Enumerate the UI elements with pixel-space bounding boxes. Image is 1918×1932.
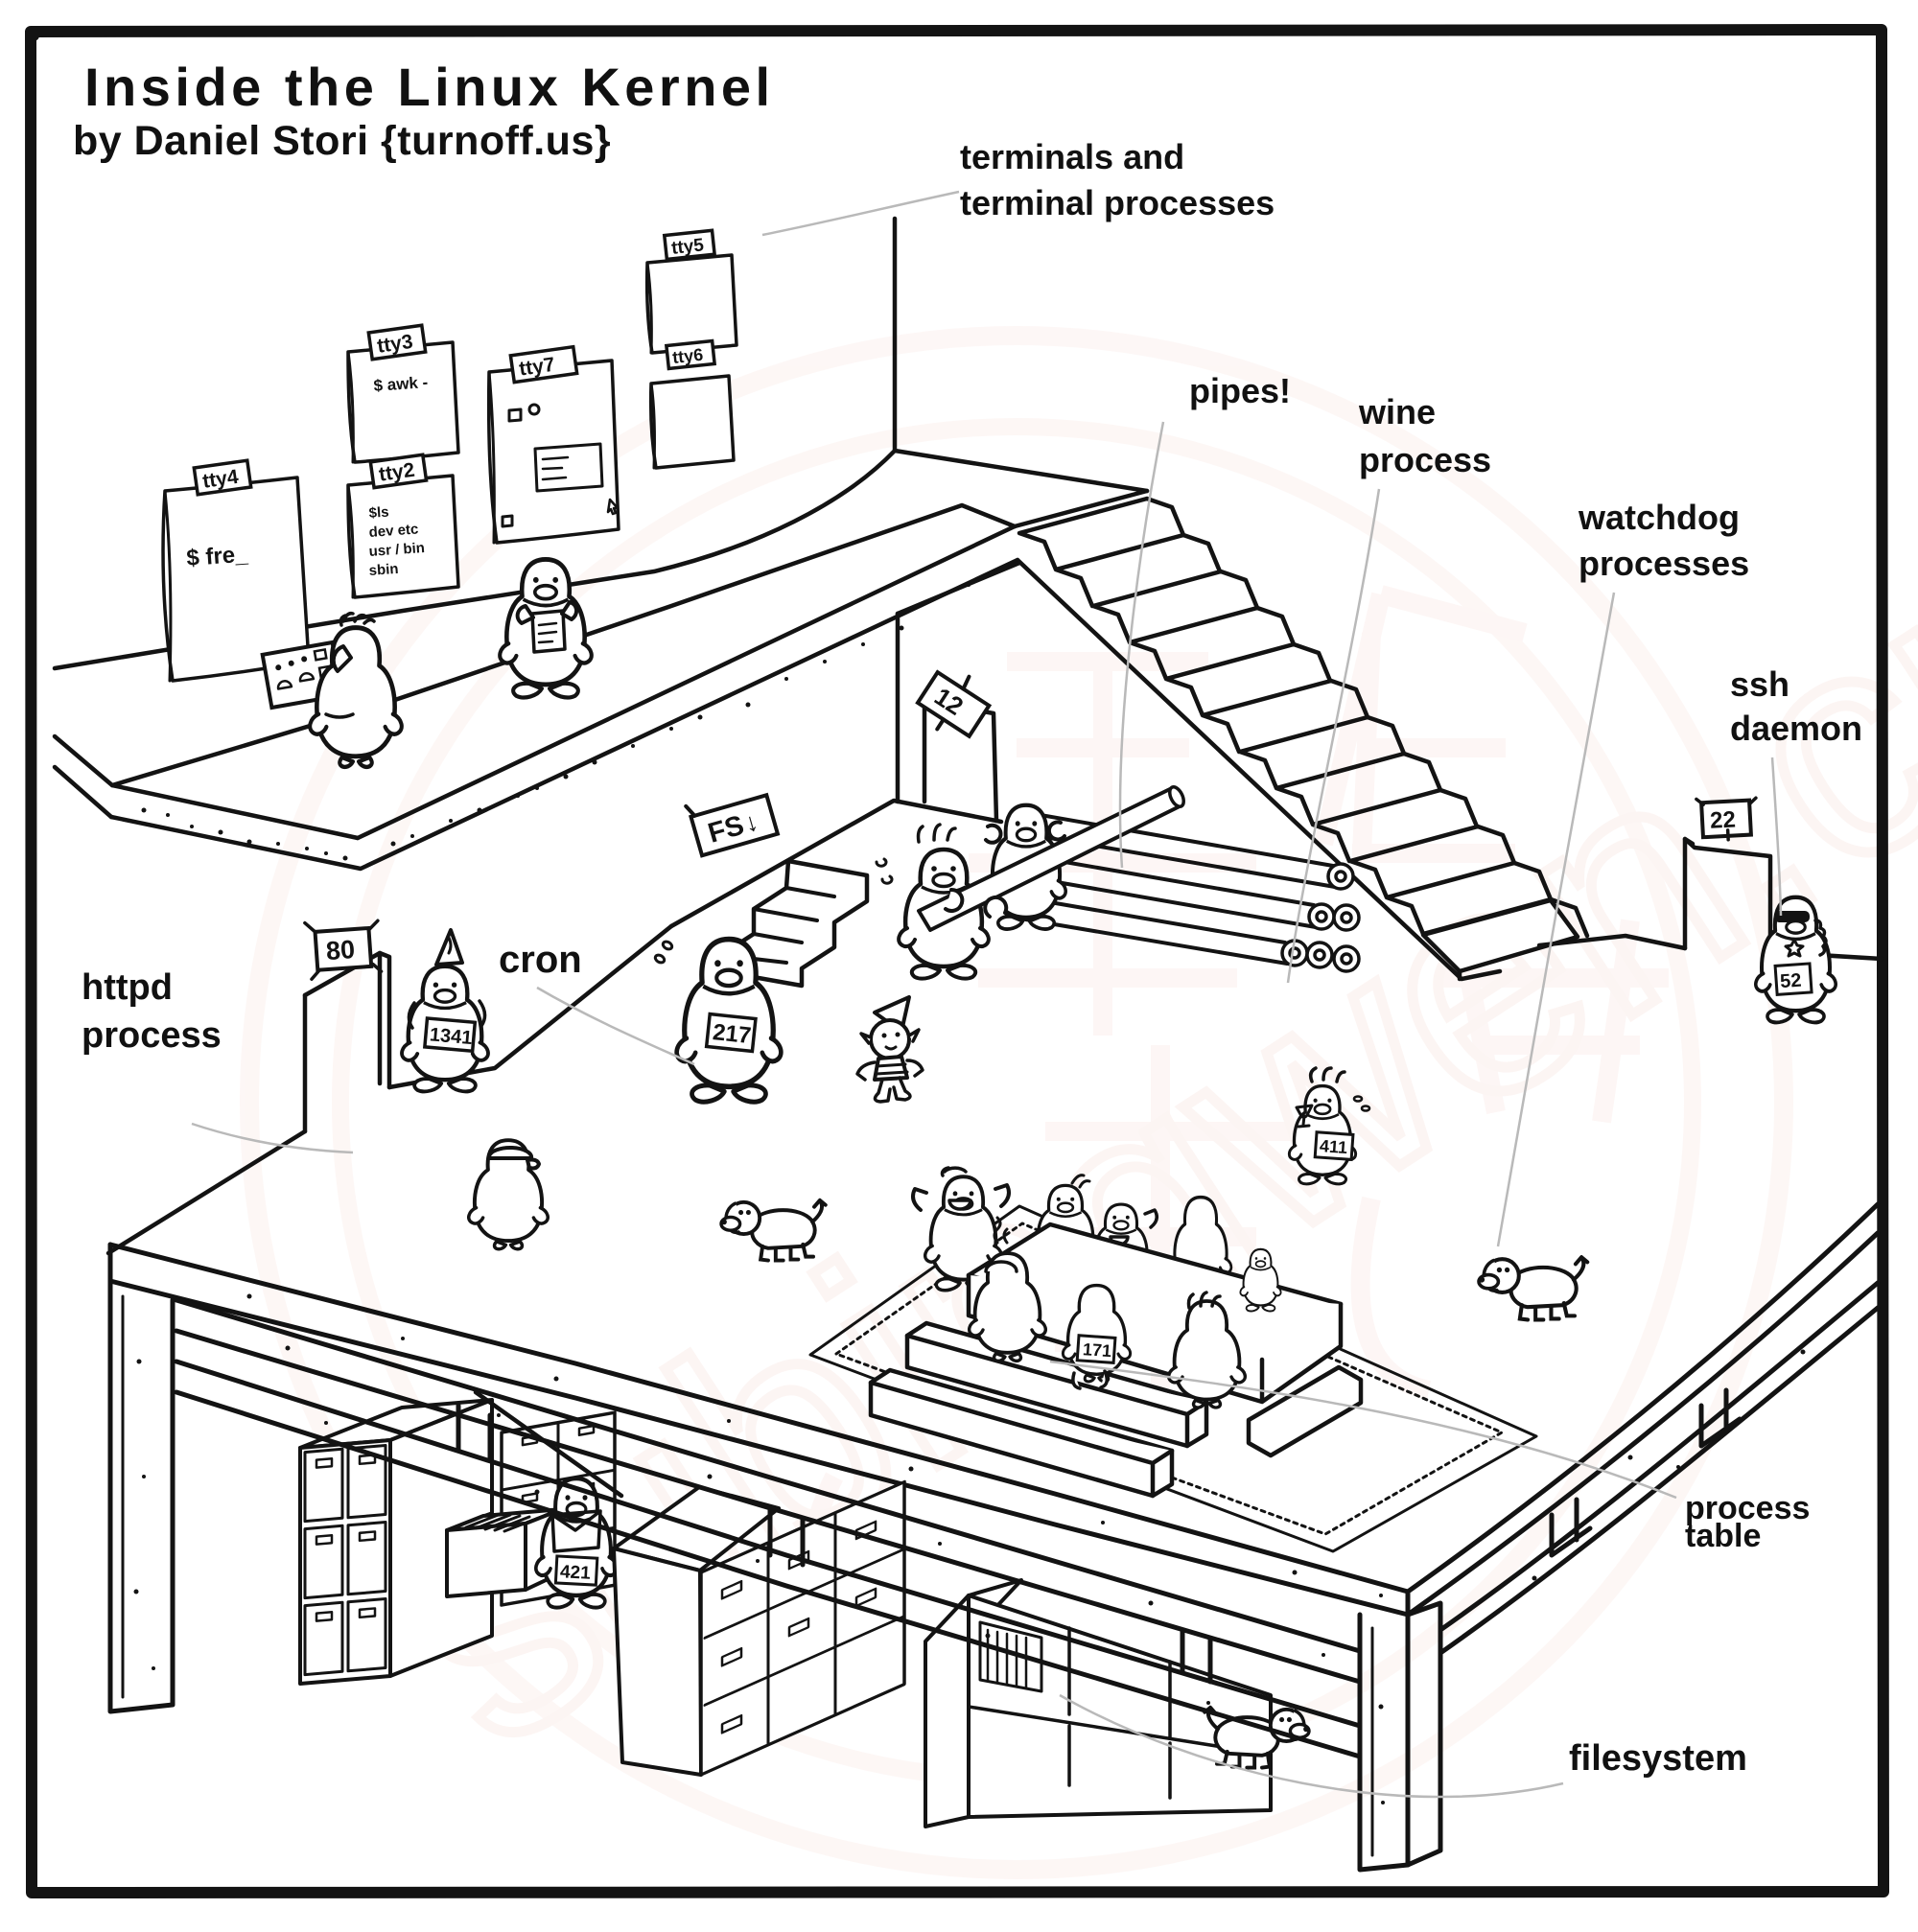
svg-text:processes: processes bbox=[1579, 544, 1749, 583]
svg-text:171: 171 bbox=[1082, 1339, 1111, 1361]
svg-text:$ls: $ls bbox=[368, 504, 389, 522]
svg-text:52: 52 bbox=[1779, 970, 1802, 992]
svg-text:process: process bbox=[1359, 440, 1491, 479]
svg-text:411: 411 bbox=[1319, 1136, 1347, 1157]
svg-text:dev etc: dev etc bbox=[368, 521, 419, 541]
svg-text:wine: wine bbox=[1358, 392, 1436, 431]
svg-text:table: table bbox=[1685, 1518, 1761, 1554]
svg-text:80: 80 bbox=[325, 935, 356, 966]
svg-text:$ fre_: $ fre_ bbox=[186, 542, 249, 571]
svg-text:terminal processes: terminal processes bbox=[960, 183, 1275, 222]
svg-text:by Daniel Stori {turnoff.us}: by Daniel Stori {turnoff.us} bbox=[73, 118, 611, 164]
svg-text:daemon: daemon bbox=[1730, 709, 1862, 748]
svg-text:tty6: tty6 bbox=[671, 345, 704, 367]
svg-text:tty5: tty5 bbox=[670, 235, 705, 258]
svg-text:filesystem: filesystem bbox=[1569, 1738, 1747, 1779]
svg-text:1341: 1341 bbox=[429, 1024, 473, 1049]
svg-text:watchdog: watchdog bbox=[1578, 498, 1740, 537]
svg-text:$ awk -: $ awk - bbox=[373, 373, 429, 395]
svg-text:421: 421 bbox=[559, 1562, 591, 1584]
svg-text:ssh: ssh bbox=[1730, 664, 1789, 704]
svg-text:cron: cron bbox=[499, 939, 582, 981]
svg-text:httpd: httpd bbox=[82, 967, 173, 1008]
svg-text:sbin: sbin bbox=[368, 561, 399, 579]
svg-text:Inside the Linux Kernel: Inside the Linux Kernel bbox=[84, 57, 775, 117]
svg-text:22: 22 bbox=[1709, 806, 1736, 833]
svg-text:pipes!: pipes! bbox=[1189, 371, 1291, 410]
svg-text:217: 217 bbox=[712, 1019, 753, 1049]
svg-text:terminals and: terminals and bbox=[960, 137, 1184, 176]
svg-text:process: process bbox=[82, 1015, 222, 1056]
